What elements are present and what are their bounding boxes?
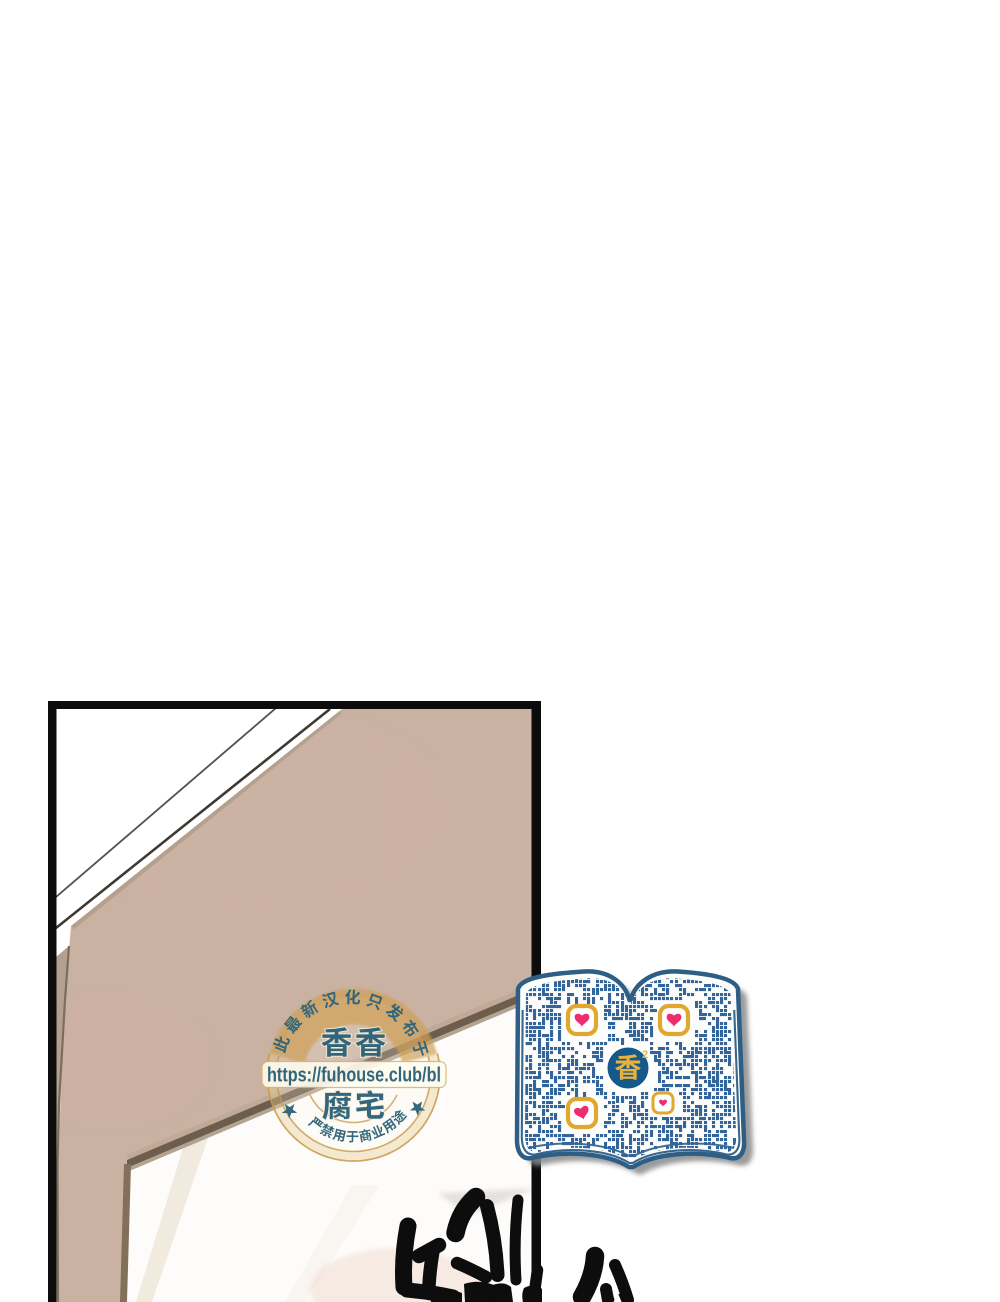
svg-text:2: 2 <box>642 1049 648 1061</box>
svg-text:https://fuhouse.club/bl: https://fuhouse.club/bl <box>267 1064 441 1087</box>
